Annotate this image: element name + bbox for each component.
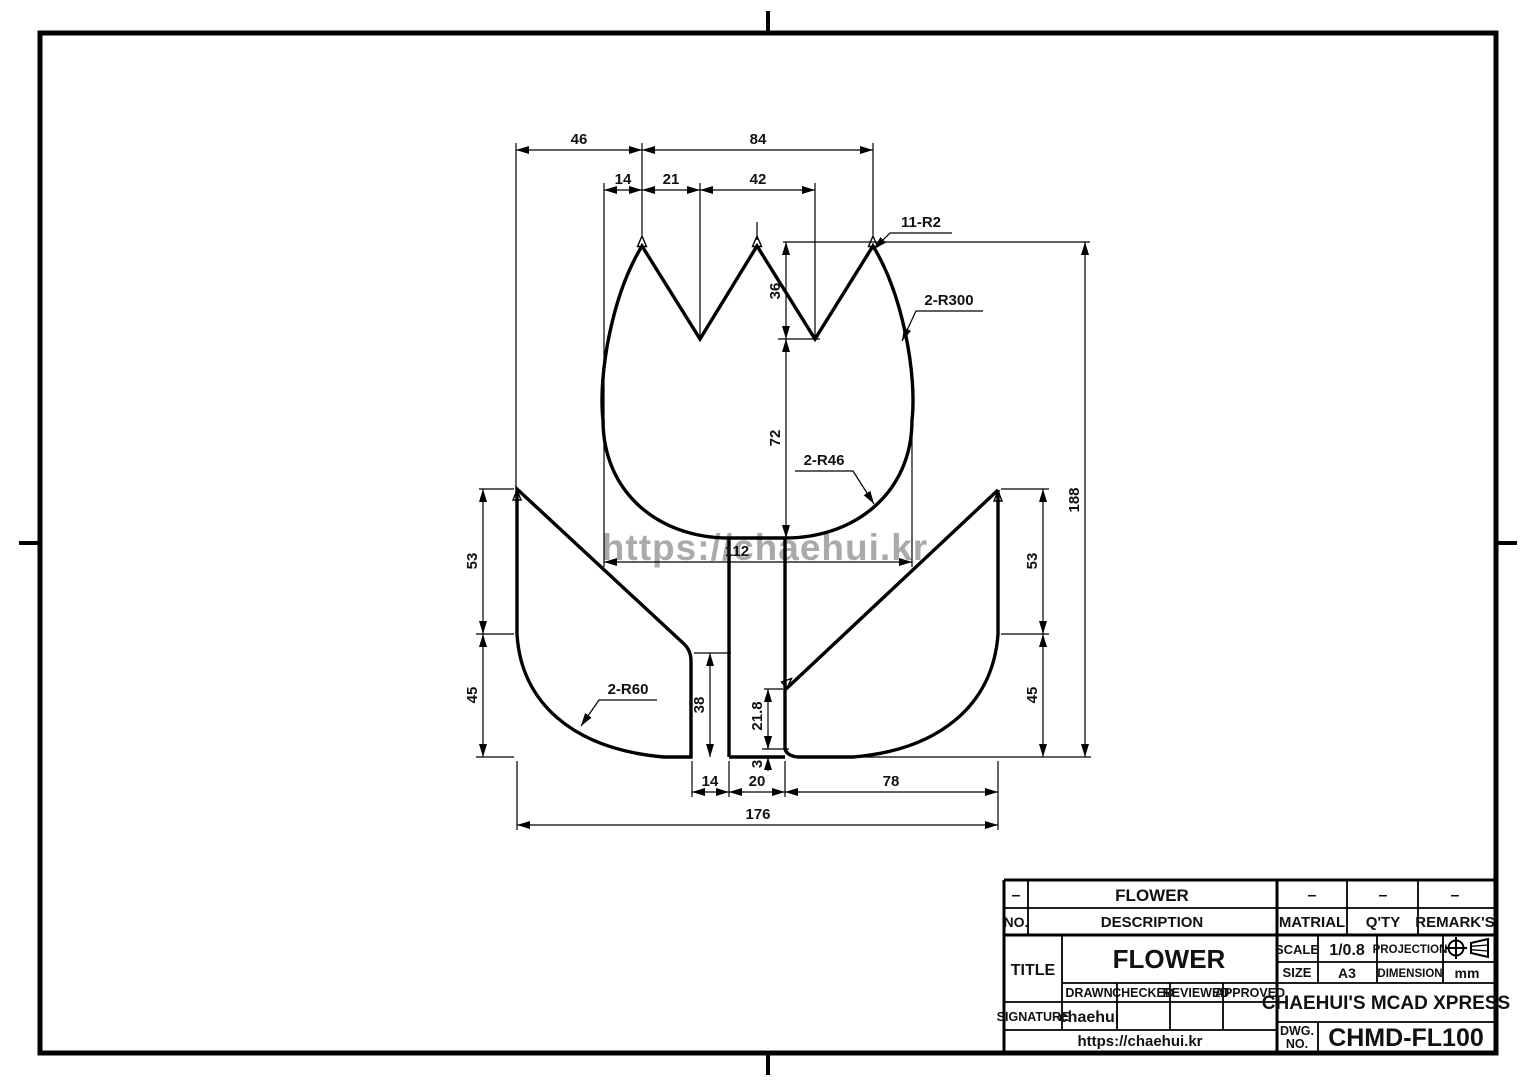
dim-72: 72	[767, 430, 784, 447]
label-2-r300: 2-R300	[924, 292, 973, 309]
dim-84: 84	[750, 131, 767, 148]
dim-38: 38	[691, 697, 708, 714]
dim-3: 3	[749, 760, 766, 768]
dim-42: 42	[750, 171, 767, 188]
size-label: SIZE	[1283, 965, 1312, 980]
stem-step-curve	[785, 749, 797, 757]
partrow-col1: –	[1012, 887, 1021, 904]
dimension-label: DIMENSION	[1377, 968, 1442, 980]
title-label: TITLE	[1011, 962, 1056, 979]
header-matrial: MATRIAL	[1279, 914, 1345, 931]
site-url: https://chaehui.kr	[1077, 1033, 1202, 1050]
company-name: CHAEHUI'S MCAD XPRESS	[1262, 993, 1510, 1014]
drawing-canvas: https://chaehui.kr	[0, 0, 1536, 1086]
label-11-r2: 11-R2	[901, 214, 941, 231]
dim-14: 14	[615, 171, 632, 188]
signature-value: chaehui	[1059, 1009, 1119, 1026]
tulip-outline	[513, 236, 1002, 757]
dim-112: 112	[725, 543, 749, 560]
dim-36: 36	[767, 283, 784, 300]
dim-left-53: 53	[464, 553, 481, 570]
header-qty: Q'TY	[1366, 914, 1400, 931]
flower-head-outline	[602, 246, 913, 538]
dwg-number: CHMD-FL100	[1328, 1024, 1484, 1052]
label-2-r60: 2-R60	[608, 681, 649, 698]
partrow-qty: –	[1379, 887, 1388, 904]
scale-value: 1/0.8	[1329, 942, 1365, 959]
projection-label: PROJECTION	[1373, 944, 1448, 956]
header-description: DESCRIPTION	[1101, 914, 1204, 931]
dim-46: 46	[571, 131, 588, 148]
title-value: FLOWER	[1113, 944, 1226, 974]
partrow-remarks: –	[1451, 887, 1460, 904]
dim-188: 188	[1066, 487, 1083, 512]
header-remarks: REMARK'S	[1415, 914, 1494, 931]
label-2-r46: 2-R46	[804, 452, 845, 469]
dimension-value: mm	[1455, 965, 1480, 981]
scale-label: SCALE	[1275, 942, 1319, 957]
dim-right-45: 45	[1024, 687, 1041, 704]
dim-bottom-14: 14	[702, 773, 719, 790]
dim-21-8: 21.8	[749, 701, 766, 730]
projection-symbol-icon	[1445, 937, 1488, 959]
right-leaf-diagonal	[786, 490, 998, 689]
dwg-label-2: NO.	[1286, 1037, 1308, 1051]
dim-176: 176	[745, 806, 770, 823]
dim-bottom-78: 78	[883, 773, 900, 790]
title-block: – FLOWER – – – NO. DESCRIPTION MATRIAL Q…	[997, 880, 1511, 1052]
dim-right-53: 53	[1024, 553, 1041, 570]
partrow-name: FLOWER	[1115, 886, 1189, 905]
drawn-label: DRAWN	[1065, 986, 1112, 1000]
dim-left-45: 45	[464, 687, 481, 704]
dim-bottom-20: 20	[749, 773, 766, 790]
dwg-label-1: DWG.	[1280, 1024, 1314, 1038]
dim-21: 21	[663, 171, 680, 188]
partrow-matrial: –	[1308, 887, 1317, 904]
header-no: NO.	[1004, 914, 1029, 930]
size-value: A3	[1338, 965, 1356, 981]
